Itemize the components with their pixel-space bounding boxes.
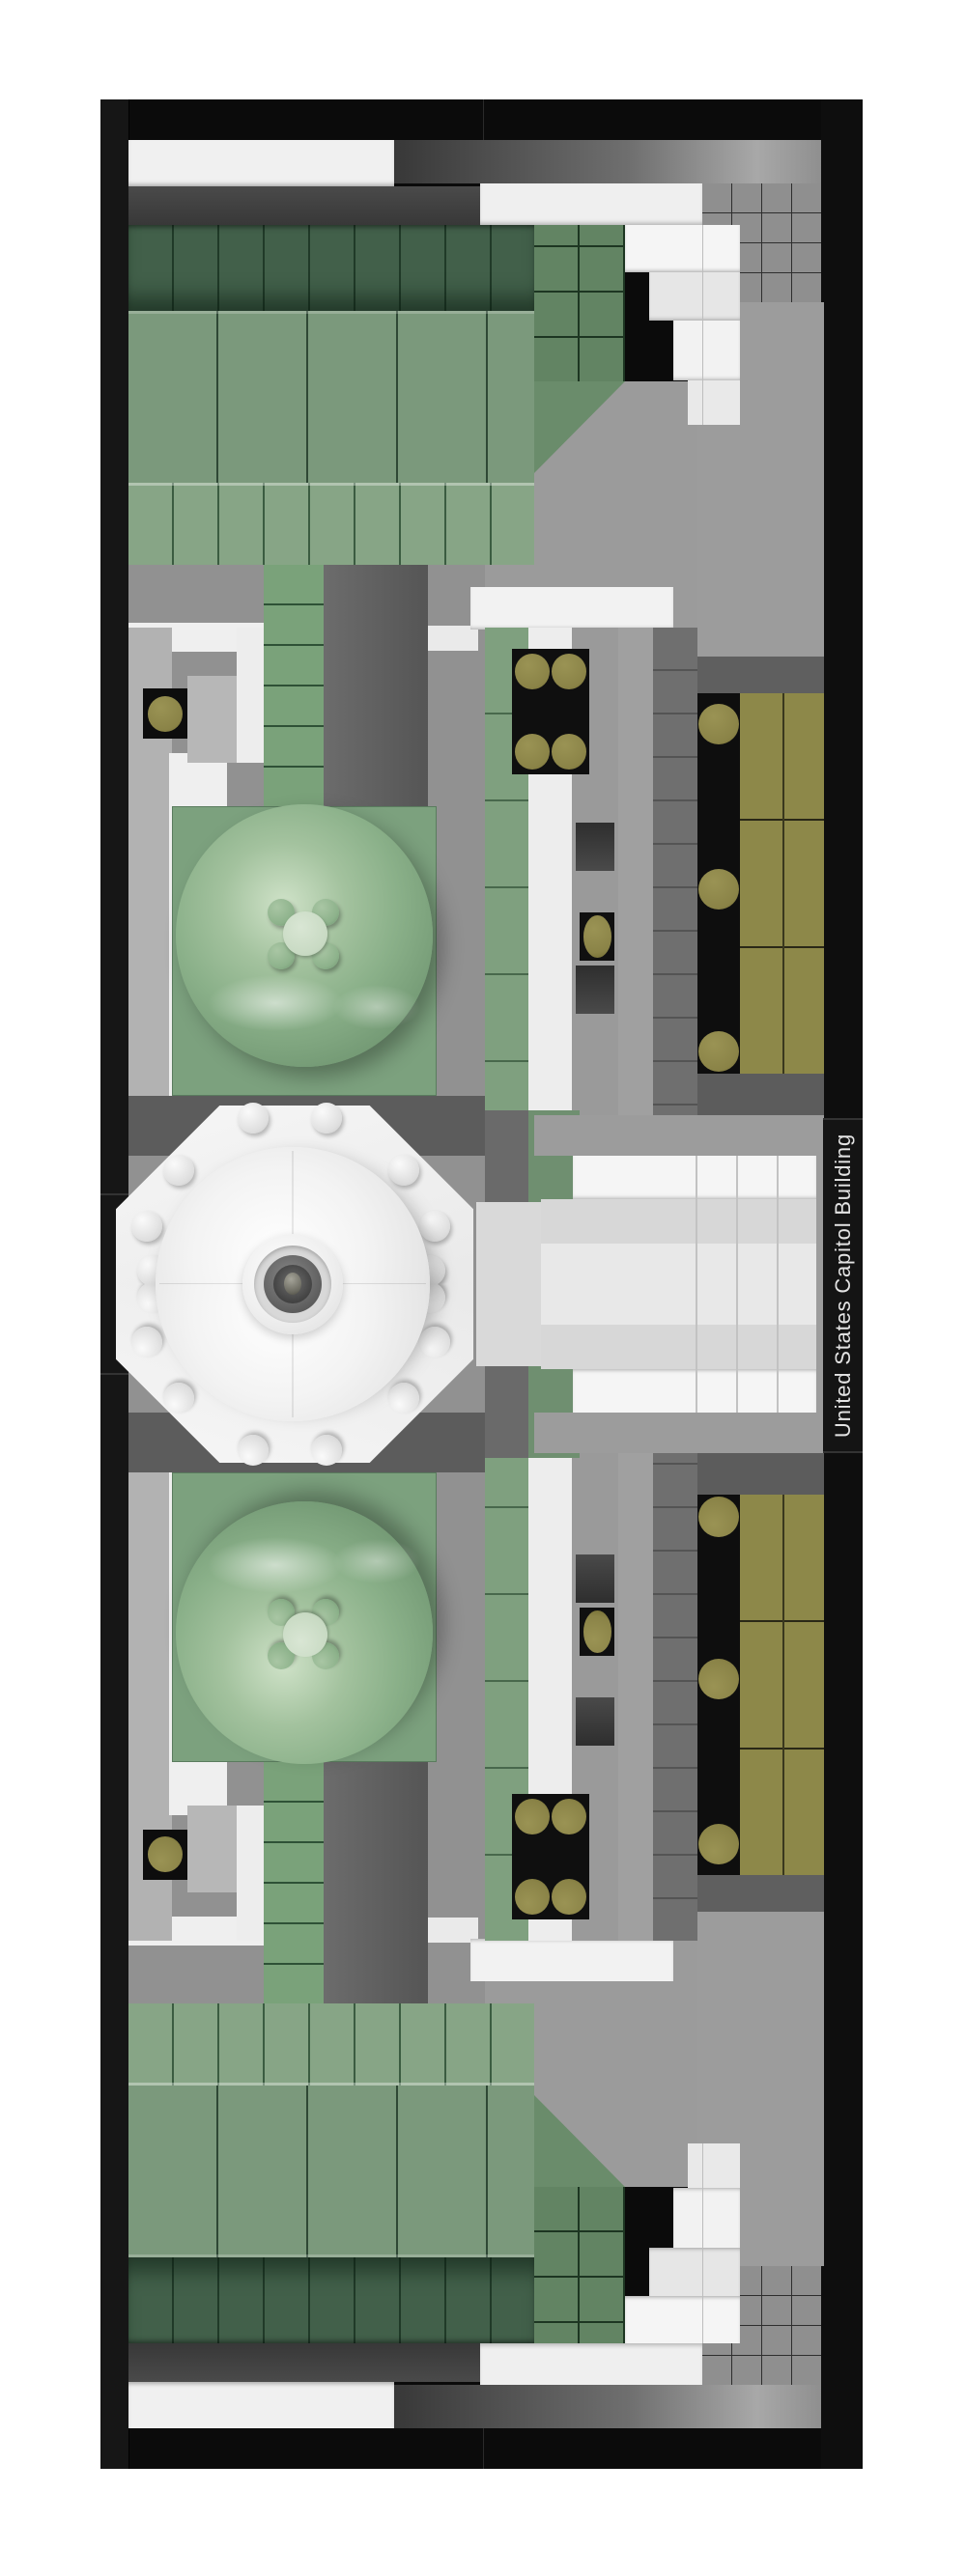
octagon-rim-stud [311,1103,342,1134]
olive-column-stud [552,1879,586,1915]
gray-gradient-strip [394,2385,821,2428]
baseplate-left-wall [100,99,129,1284]
olive-column-stud [552,734,586,770]
wing-roof-main-panels [128,2086,534,2257]
olive-column-stud [552,1799,586,1834]
terrace-step [673,321,740,380]
capitol-step-band [541,1325,816,1369]
plaza-above-steps [534,1413,821,1453]
gray-column-a [618,1413,653,1941]
olive-colonnade-stud [698,869,739,910]
colonnade-tile-seam [782,1495,784,1875]
octagon-rim-stud [311,1435,342,1466]
walkway-east [470,587,673,630]
tile-right-of-stud [187,676,237,763]
terrace-seam [702,2143,703,2343]
white-border-strip [128,2382,394,2428]
terrace-step [625,2296,740,2343]
octagon-rim-stud [163,1383,194,1414]
dome-sheen [208,975,343,1031]
colonnade-dark-band [697,1875,824,1912]
gray-column-b [653,628,697,1156]
step-seams [657,1369,816,1413]
dark-gray-strip [128,186,480,225]
octagon-rim-stud [131,1211,162,1242]
wing-roof-upper-row [128,225,534,311]
darkgray-tile [485,1110,528,1202]
step-seams [657,1325,816,1369]
gray-column-b [653,1413,697,1941]
dome-sheen [208,1537,343,1593]
olive-column-stud [552,654,586,689]
terrace-step [688,380,740,425]
dome-center-plate [283,1612,327,1657]
capitol-step-band [573,1156,816,1199]
set-name-tile: United States Capitol Building [823,1118,863,1453]
olive-column-stud [583,1610,611,1653]
chamber-roof-dark [324,1762,428,2003]
step-seams [657,1244,816,1284]
olive-colonnade-stud [698,1497,739,1537]
octagon-rim-stud [419,1327,450,1358]
step-seams [657,1199,816,1244]
terrace-step [625,225,740,272]
wing-roof-lower-row [128,2003,534,2086]
window-recess [576,1697,614,1746]
olive-column-stud [515,1879,550,1915]
colonnade-tile-seam [782,693,784,1074]
olive-colonnade-stud [698,1659,739,1699]
plaza-above-steps [534,1115,821,1156]
capitol-step-band [541,1284,816,1325]
octagon-rim-stud [163,1155,194,1186]
dark-gray-strip [128,2343,480,2382]
model-bottom-half [0,1284,966,2568]
olive-colonnade-stud [698,704,739,744]
octagon-rim-stud [238,1103,269,1134]
dome-center-plate [283,911,327,956]
window-recess [576,823,614,871]
lego-capitol-top-view-render: United States Capitol Building [0,0,966,2576]
olive-column-stud [515,1799,550,1834]
gable-ridge-strip [264,565,324,806]
baseplate-left-wall [100,1284,129,2469]
baseplate-wall-seam [100,1193,128,1195]
dome-sheen [333,985,420,1029]
colonnade-dark-band [697,657,824,693]
octagon-rim-stud [238,1435,269,1466]
gray-gradient-strip [394,140,821,183]
freedom-statue-top [284,1273,301,1295]
baseplate-right-wall [821,99,863,1284]
octagon-rim-stud [131,1327,162,1358]
octagon-rim-stud [388,1383,419,1414]
tile-right-of-stud [187,1806,237,1892]
gable-ridge-strip [264,1762,324,2003]
wing-roof-lower-row [128,483,534,565]
capitol-step-band [541,1244,816,1284]
window-recess [576,1554,614,1603]
white-band-upper-right [480,183,702,225]
olive-colonnade-stud [698,1031,739,1072]
octagon-rim-stud [419,1211,450,1242]
roof-bay-tiles [534,225,625,381]
step-seams [657,1156,816,1199]
olive-column-stud [148,696,183,732]
wing-roof-upper-row [128,2257,534,2343]
set-name-label: United States Capitol Building [831,1134,856,1438]
window-recess [576,966,614,1014]
chamber-roof-dark [324,565,428,806]
terrace-seam [702,225,703,425]
gray-column-a [618,628,653,1156]
dome-sheen [333,1539,420,1583]
terrace-step [649,2248,740,2296]
terrace-step [649,272,740,321]
white-band-upper-right [480,2343,702,2385]
olive-colonnade-stud [698,1824,739,1864]
wing-roof-main-panels [128,311,534,483]
darkgray-tile [485,1366,528,1458]
colonnade-dark-band [697,1074,824,1115]
terrace-step [673,2188,740,2248]
step-seams [657,1284,816,1325]
model-top-half [0,0,966,1284]
terrace-step [688,2143,740,2188]
baseplate-wall-seam [100,1373,128,1375]
olive-column-stud [583,915,611,958]
baseplate-seam [483,2428,484,2469]
olive-column-stud [148,1836,183,1872]
octagon-rim-stud [388,1155,419,1186]
olive-column-stud [515,734,550,770]
baseplate-right-wall [821,1284,863,2469]
walkway-east [470,1939,673,1981]
capitol-step-band [541,1199,816,1244]
colonnade-dark-band [697,1453,824,1495]
baseplate-seam [483,99,484,140]
capitol-step-band [573,1369,816,1413]
white-border-strip [128,140,394,186]
roof-bay-tiles [534,2187,625,2343]
olive-column-stud [515,654,550,689]
